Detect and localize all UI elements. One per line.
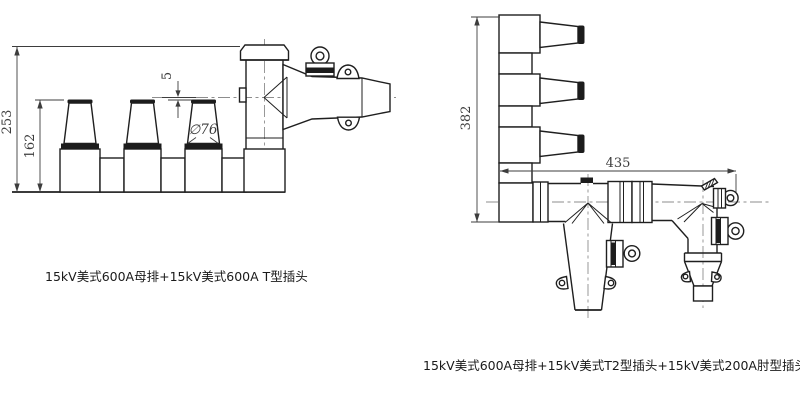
dim-diameter-label: ∅76 [189,122,218,138]
drawing-canvas: 253 162 5 ∅76 [0,0,800,400]
test-point-nub [240,88,247,102]
eye-hole [316,52,324,60]
t-plug [240,45,391,149]
dim-total-height-label: 253 [0,110,15,135]
figure-right-busbar-t2-elbow: 382 435 [459,15,770,320]
t-plug-arm [283,65,390,130]
caption-left: 15kV美式600A母排+15kV美式600A T型插头 [45,266,308,285]
t-plug-cap [241,45,289,60]
eye-hole [732,227,739,234]
dim-height-label: 382 [459,106,474,131]
bushing [61,100,99,150]
eye-hole [629,250,636,257]
busbar-base [12,149,285,192]
bushing [540,131,585,157]
eye-base [714,189,726,209]
bushing [540,78,585,104]
dim-bushing-height-label: 162 [23,134,38,159]
horizontal-run [533,178,714,223]
dim-width-label: 435 [606,156,631,171]
technical-drawing: 253 162 5 ∅76 [0,0,800,400]
top-clip [581,178,594,184]
bushing [540,22,585,48]
eye-hole [727,195,734,202]
dim-offset-label: 5 [160,72,175,80]
elbow-plug [672,179,744,302]
caption-right: 15kV美式600A母排+15kV美式T2型插头+15kV美式200A肘型插头 [423,355,800,374]
bushing [124,100,162,150]
elbow-tip [694,286,713,301]
figure-left-busbar-t-plug: 253 162 5 ∅76 [0,39,396,192]
